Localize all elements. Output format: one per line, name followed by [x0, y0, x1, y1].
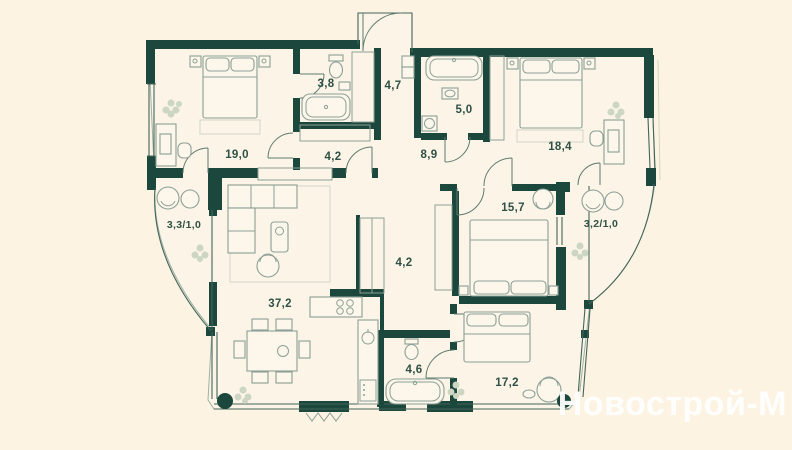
cabinet-entry: [402, 56, 414, 78]
room-label-balcony-right: 3,2/1,0: [584, 218, 618, 230]
floor-plan-svg: 19,0 3,8 4,7 5,0 18,4 4,2 8,9 3,3/1,0 15…: [0, 0, 792, 450]
room-label-bathroom1: 3,8: [318, 78, 335, 90]
sink-bathroom1: [339, 82, 350, 90]
bed-bedroom3: [459, 220, 558, 296]
room-label-corridor: 4,2: [396, 257, 413, 269]
room-label-bedroom4: 17,2: [495, 377, 519, 389]
room-label-hall-ctr: 8,9: [421, 149, 438, 161]
armchair-bedroom3: [533, 189, 553, 209]
washer-bathroom2: [422, 116, 437, 131]
room-label-balcony-left: 3,3/1,0: [167, 219, 201, 231]
bathtub-bathroom2: [426, 56, 482, 80]
sink-bathroom2: [442, 88, 458, 99]
room-label-bedroom1: 19,0: [225, 149, 249, 161]
room-label-living: 37,2: [268, 298, 292, 310]
room-label-hall-top: 4,2: [325, 151, 342, 163]
floor-plan-page: 19,0 3,8 4,7 5,0 18,4 4,2 8,9 3,3/1,0 15…: [0, 0, 792, 450]
room-label-bathroom3: 4,6: [406, 364, 423, 376]
coffee-table-living: [271, 222, 288, 252]
armchair-living: [257, 254, 279, 277]
watermark-text: Новострой-М: [558, 385, 787, 424]
bathtub-bathroom3: [386, 379, 444, 404]
toilet-bathroom3: [405, 339, 418, 360]
room-label-bathroom2: 5,0: [456, 104, 473, 116]
toilet-bathroom1: [329, 55, 343, 78]
bed-bedroom4: [464, 312, 530, 362]
room-label-entry: 4,7: [385, 80, 402, 92]
room-label-bedroom3: 15,7: [501, 202, 525, 214]
room-label-bedroom2: 18,4: [548, 141, 572, 153]
column-living: [217, 393, 233, 409]
bathtub-bathroom1: [302, 94, 350, 120]
